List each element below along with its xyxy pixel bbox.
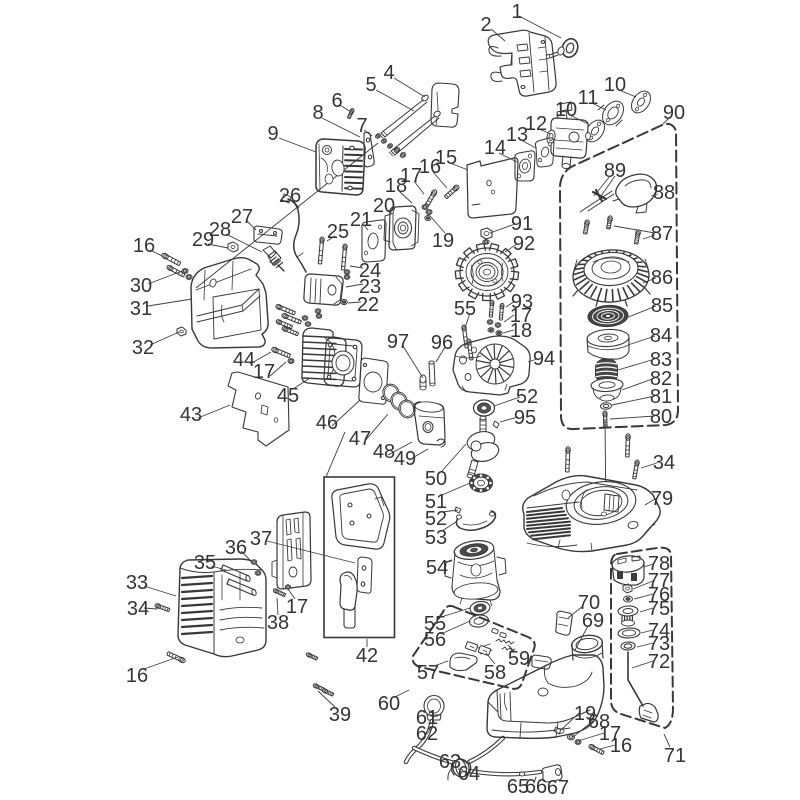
- svg-text:9: 9: [267, 123, 278, 145]
- svg-text:29: 29: [192, 229, 214, 251]
- svg-text:19: 19: [432, 230, 454, 252]
- svg-text:32: 32: [132, 337, 154, 359]
- svg-text:71: 71: [664, 745, 686, 767]
- svg-text:10: 10: [555, 99, 577, 121]
- svg-text:89: 89: [604, 160, 626, 182]
- svg-text:88: 88: [653, 182, 675, 204]
- svg-text:54: 54: [426, 557, 448, 579]
- svg-text:27: 27: [231, 206, 253, 228]
- svg-text:10: 10: [604, 74, 626, 96]
- svg-text:6: 6: [331, 90, 342, 112]
- svg-text:7: 7: [356, 115, 367, 137]
- svg-text:45: 45: [277, 385, 299, 407]
- svg-text:33: 33: [126, 572, 148, 594]
- svg-text:5: 5: [365, 74, 376, 96]
- svg-text:95: 95: [514, 407, 536, 429]
- svg-text:87: 87: [651, 223, 673, 245]
- svg-text:8: 8: [312, 102, 323, 124]
- svg-text:64: 64: [458, 763, 480, 785]
- svg-text:35: 35: [194, 552, 216, 574]
- svg-text:50: 50: [425, 468, 447, 490]
- svg-text:85: 85: [651, 295, 673, 317]
- svg-text:44: 44: [233, 349, 255, 371]
- svg-text:11: 11: [578, 87, 599, 109]
- svg-text:81: 81: [650, 386, 672, 408]
- svg-text:22: 22: [357, 294, 379, 316]
- svg-text:42: 42: [356, 645, 378, 667]
- svg-text:17: 17: [253, 361, 275, 383]
- svg-text:16: 16: [419, 156, 441, 178]
- svg-text:34: 34: [127, 598, 149, 620]
- svg-text:25: 25: [327, 221, 349, 243]
- svg-text:80: 80: [650, 406, 672, 428]
- svg-text:12: 12: [525, 113, 547, 135]
- svg-text:18: 18: [510, 320, 532, 342]
- svg-text:49: 49: [394, 448, 416, 470]
- svg-text:13: 13: [506, 124, 528, 146]
- svg-text:56: 56: [424, 629, 446, 651]
- svg-text:2: 2: [480, 14, 491, 36]
- svg-text:21: 21: [350, 209, 372, 231]
- svg-text:43: 43: [180, 404, 202, 426]
- svg-text:96: 96: [431, 332, 453, 354]
- svg-text:37: 37: [250, 528, 272, 550]
- svg-text:18: 18: [385, 175, 407, 197]
- svg-text:59: 59: [508, 648, 530, 670]
- svg-text:30: 30: [130, 275, 152, 297]
- svg-text:39: 39: [329, 704, 351, 726]
- svg-text:67: 67: [547, 777, 569, 799]
- svg-text:66: 66: [525, 776, 547, 798]
- svg-text:58: 58: [484, 662, 506, 684]
- svg-text:84: 84: [650, 325, 672, 347]
- svg-text:14: 14: [484, 137, 506, 159]
- svg-text:16: 16: [133, 235, 155, 257]
- svg-text:31: 31: [130, 298, 152, 320]
- svg-text:47: 47: [349, 428, 371, 450]
- svg-text:48: 48: [373, 441, 395, 463]
- svg-text:69: 69: [582, 610, 604, 632]
- svg-text:4: 4: [383, 62, 394, 84]
- svg-text:55: 55: [454, 298, 476, 320]
- svg-text:17: 17: [286, 596, 308, 618]
- svg-text:16: 16: [610, 735, 632, 757]
- svg-text:86: 86: [651, 267, 673, 289]
- svg-text:1: 1: [511, 1, 522, 23]
- svg-text:26: 26: [279, 185, 301, 207]
- svg-text:36: 36: [225, 537, 247, 559]
